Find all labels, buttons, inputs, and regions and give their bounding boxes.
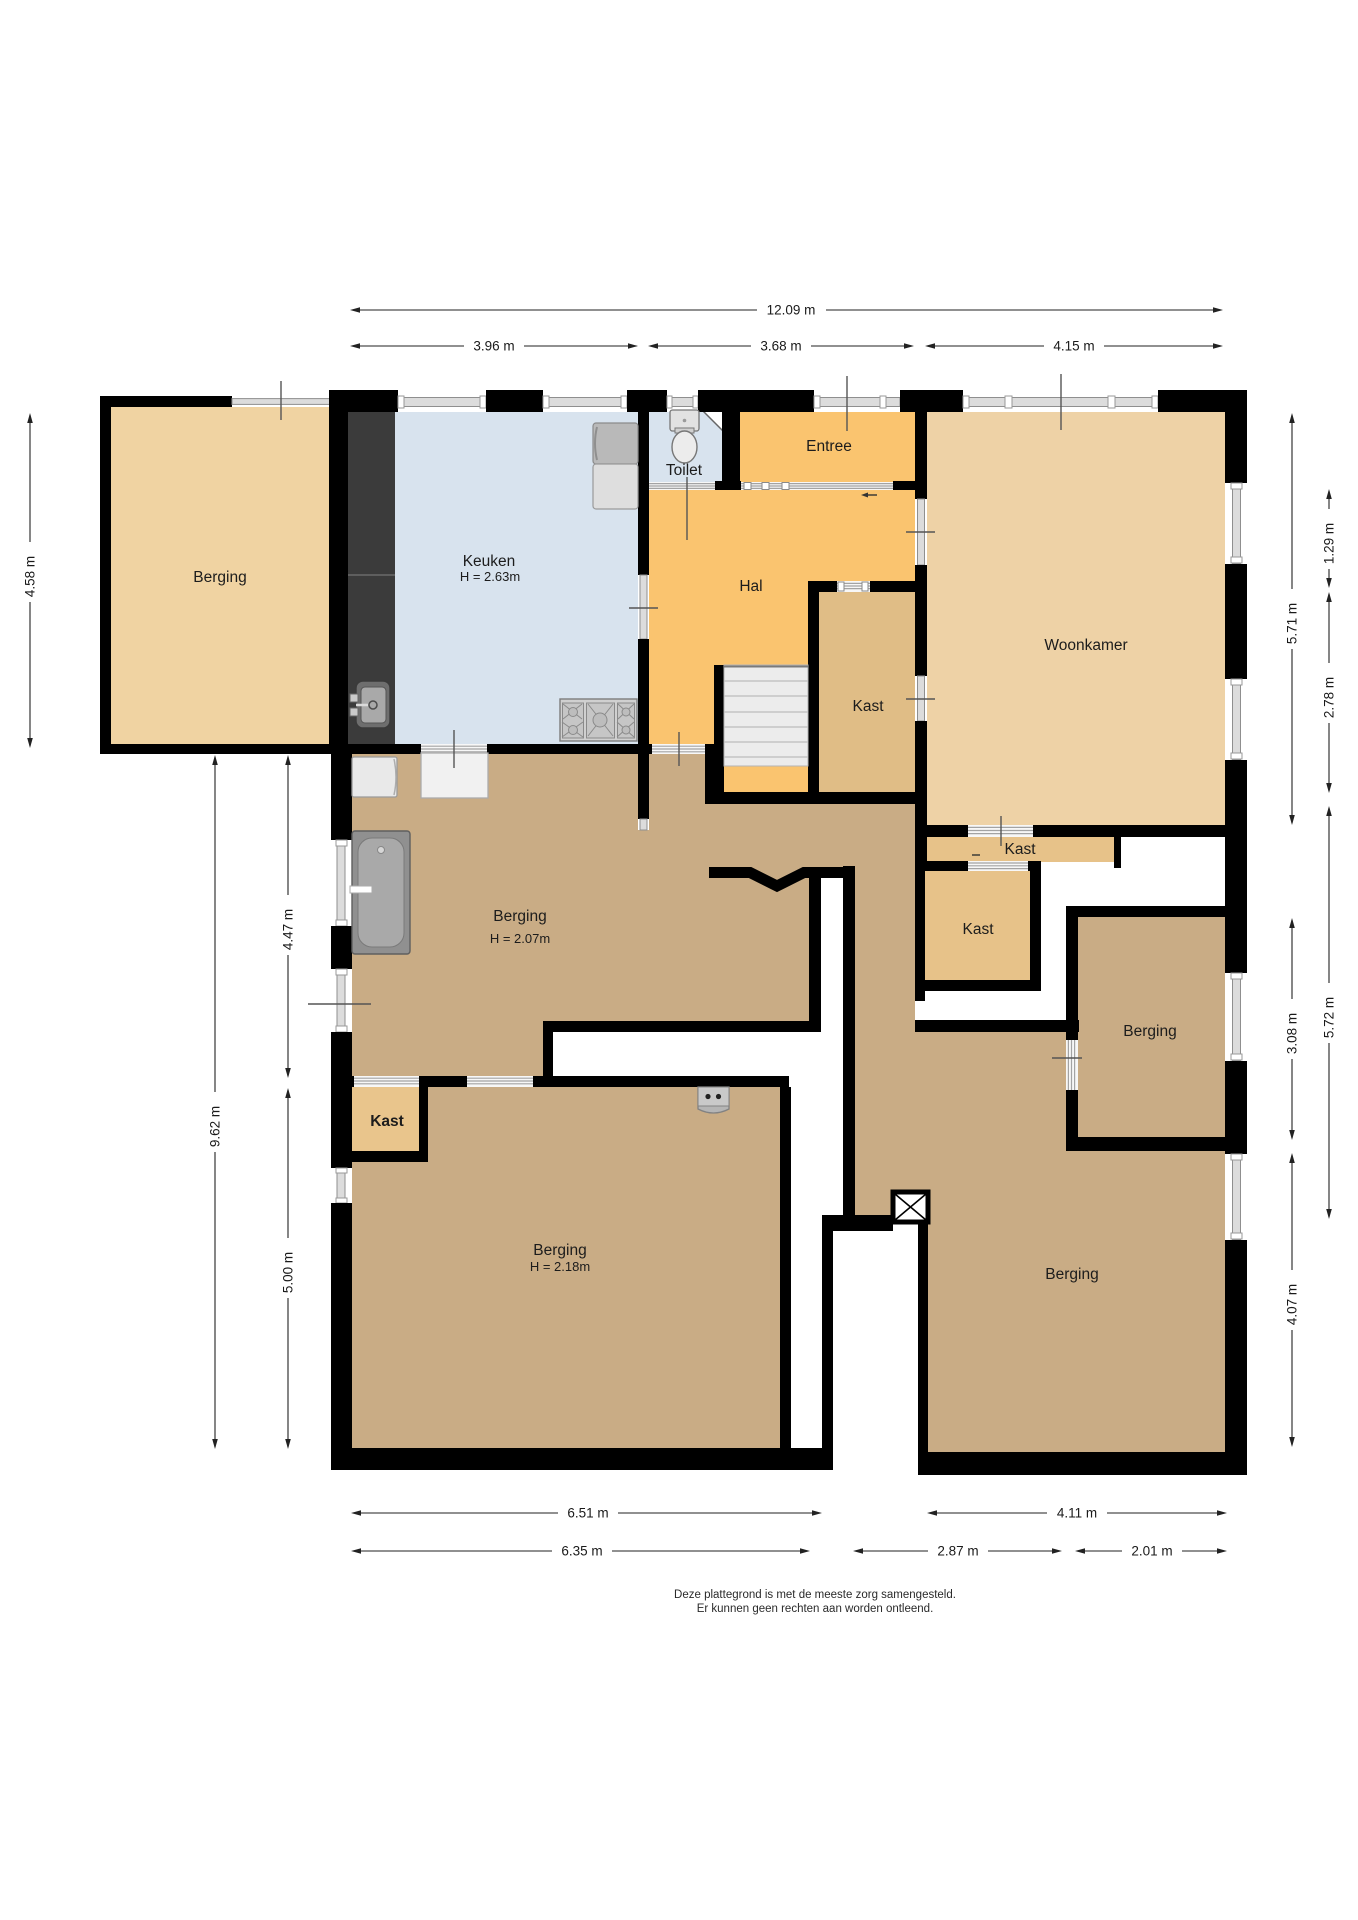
svg-text:5.00 m: 5.00 m	[281, 1252, 296, 1293]
svg-text:4.58 m: 4.58 m	[23, 556, 38, 597]
svg-text:5.72 m: 5.72 m	[1322, 997, 1337, 1038]
svg-text:4.47 m: 4.47 m	[281, 909, 296, 950]
svg-text:H = 2.18m: H = 2.18m	[530, 1259, 590, 1274]
svg-text:Deze plattegrond is met de mee: Deze plattegrond is met de meeste zorg s…	[674, 1589, 956, 1601]
svg-text:Berging: Berging	[193, 569, 246, 586]
svg-text:H = 2.63m: H = 2.63m	[460, 569, 520, 584]
svg-text:H = 2.07m: H = 2.07m	[490, 931, 550, 946]
svg-text:1.29 m: 1.29 m	[1322, 523, 1337, 564]
svg-text:5.71 m: 5.71 m	[1285, 603, 1300, 644]
svg-text:2.01 m: 2.01 m	[1131, 1544, 1172, 1559]
svg-text:4.11 m: 4.11 m	[1057, 1506, 1097, 1521]
svg-text:6.51 m: 6.51 m	[567, 1506, 608, 1521]
svg-text:Hal: Hal	[739, 578, 762, 595]
svg-text:12.09 m: 12.09 m	[767, 303, 816, 318]
svg-text:Berging: Berging	[1123, 1023, 1176, 1040]
svg-text:2.87 m: 2.87 m	[937, 1544, 978, 1559]
svg-text:Kast: Kast	[962, 921, 994, 938]
svg-text:6.35 m: 6.35 m	[561, 1544, 602, 1559]
svg-text:2.78 m: 2.78 m	[1322, 677, 1337, 718]
svg-text:Kast: Kast	[1004, 841, 1036, 858]
svg-text:Keuken: Keuken	[463, 553, 516, 570]
svg-text:3.08 m: 3.08 m	[1285, 1013, 1300, 1054]
svg-text:Entree: Entree	[806, 438, 852, 455]
svg-text:Berging: Berging	[493, 908, 546, 925]
svg-text:Kast: Kast	[852, 698, 884, 715]
svg-text:Kast: Kast	[370, 1113, 404, 1130]
svg-text:4.15 m: 4.15 m	[1053, 339, 1094, 354]
svg-text:3.68 m: 3.68 m	[760, 339, 801, 354]
svg-text:Toilet: Toilet	[666, 462, 703, 479]
svg-text:4.07 m: 4.07 m	[1285, 1284, 1300, 1325]
svg-text:9.62 m: 9.62 m	[208, 1106, 223, 1147]
svg-text:Berging: Berging	[1045, 1266, 1098, 1283]
svg-text:3.96 m: 3.96 m	[473, 339, 514, 354]
svg-text:Woonkamer: Woonkamer	[1044, 637, 1127, 654]
svg-text:Berging: Berging	[533, 1242, 586, 1259]
svg-text:Er kunnen geen rechten aan wor: Er kunnen geen rechten aan worden ontlee…	[697, 1603, 934, 1615]
